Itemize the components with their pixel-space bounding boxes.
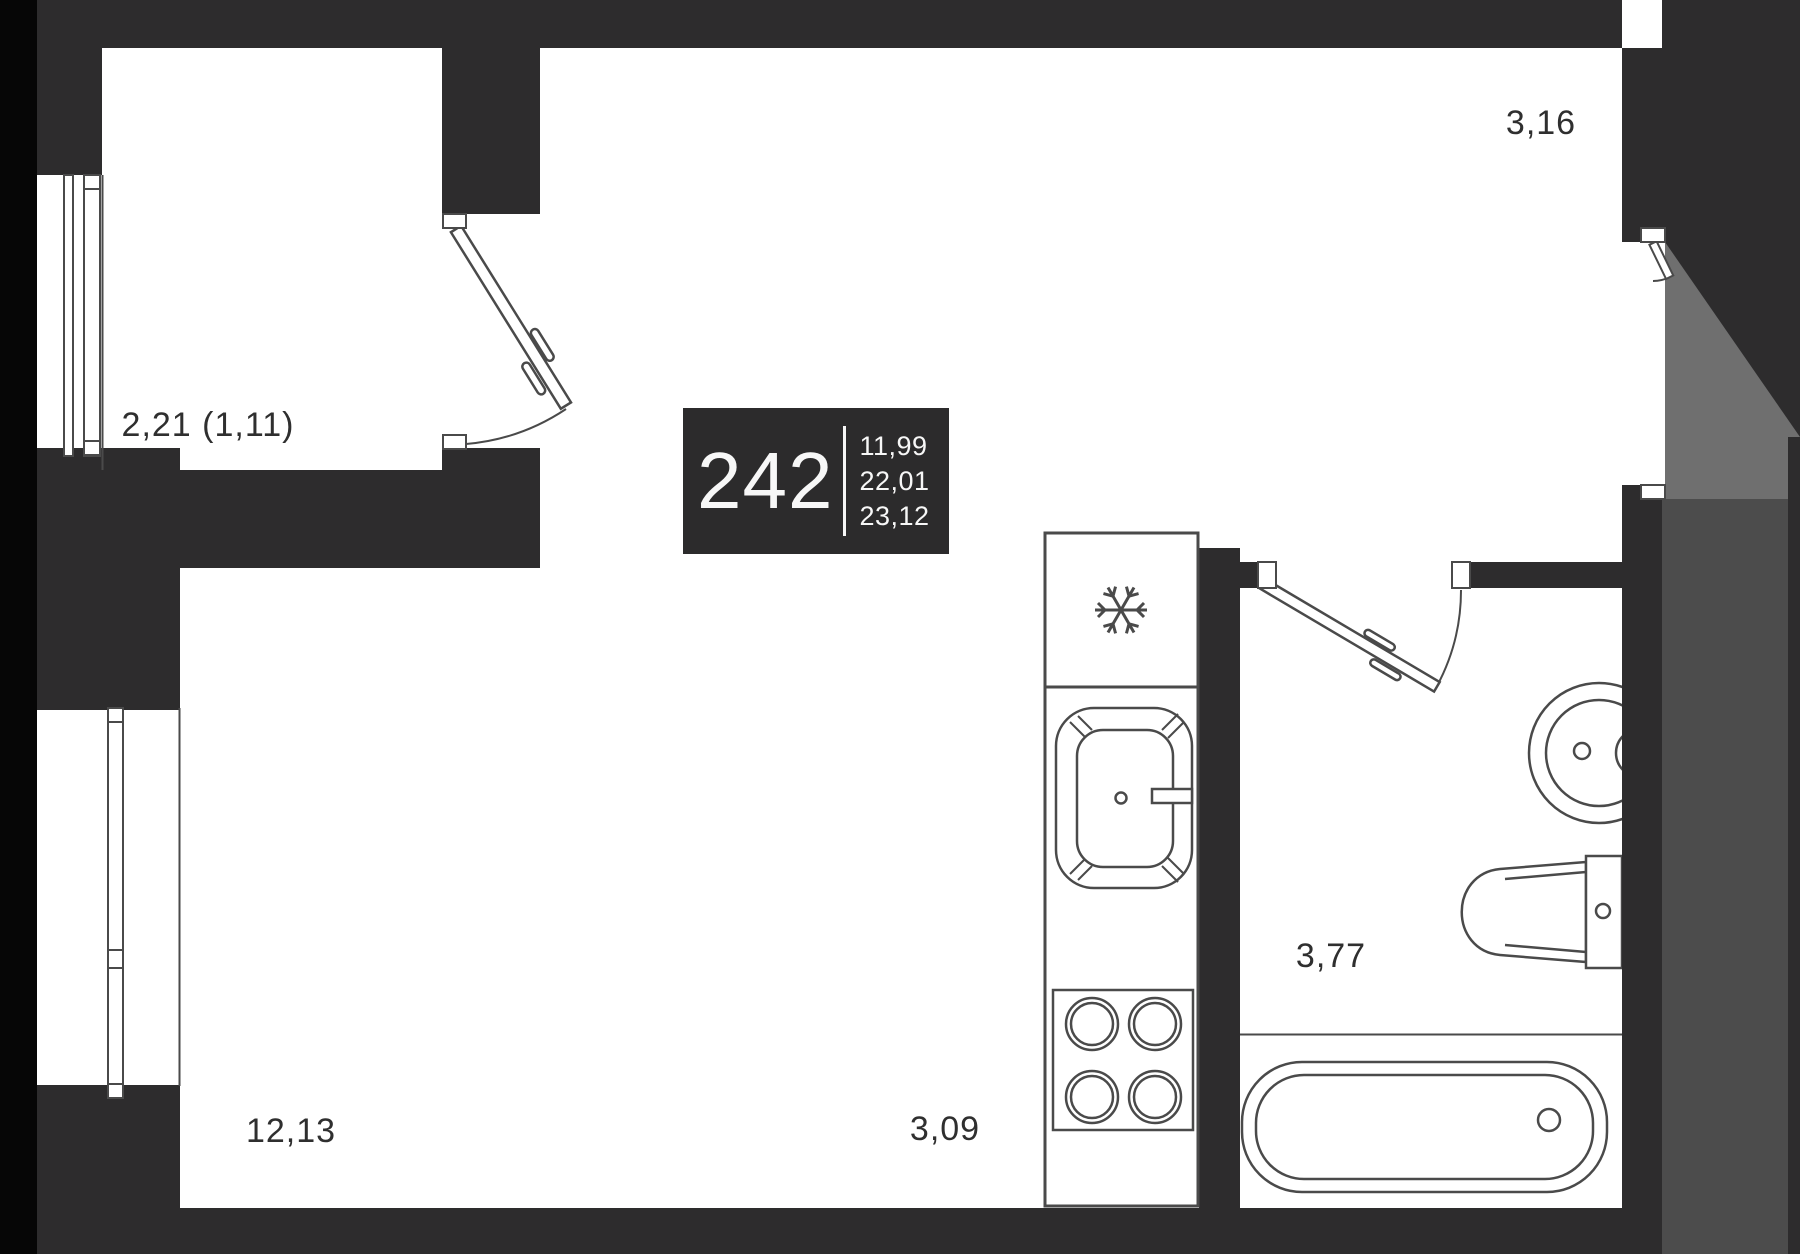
bathtub	[1242, 1062, 1607, 1192]
plan-linework	[0, 0, 1800, 1254]
unit-area-row: 22,01	[859, 464, 929, 499]
unit-area-row: 11,99	[859, 429, 929, 464]
bathroom-area-label: 3,77	[1278, 939, 1384, 973]
door-jamb	[1452, 562, 1470, 588]
unit-info-badge: 242 11,99 22,01 23,12	[683, 408, 949, 554]
badge-divider	[843, 426, 846, 536]
top-room-area-label: 3,16	[1486, 106, 1596, 140]
living-room-area-label: 12,13	[228, 1114, 354, 1148]
floor-plan: 2,21 (1,11) 3,16 12,13 3,09 3,77 242 11,…	[0, 0, 1800, 1254]
balcony-door	[442, 214, 580, 449]
unit-number: 242	[683, 441, 833, 521]
unit-area-row: 23,12	[859, 499, 929, 534]
door-jamb	[1258, 562, 1276, 588]
balcony-door-swing-arc	[466, 409, 566, 444]
door-jamb	[443, 214, 466, 228]
door-jamb	[443, 435, 466, 449]
toilet	[1462, 856, 1622, 968]
door-jamb	[1641, 228, 1665, 242]
door-jamb	[1641, 485, 1665, 499]
living-room-window	[108, 708, 123, 1098]
entry-door	[1641, 228, 1673, 499]
kitchen-sink	[1056, 708, 1192, 888]
bathroom-sink	[1529, 683, 1669, 823]
balcony-area-label: 2,21 (1,11)	[118, 408, 298, 442]
unit-area-list: 11,99 22,01 23,12	[859, 429, 929, 534]
balcony-window	[64, 175, 100, 456]
bathroom-door-swing-arc	[1437, 590, 1461, 686]
kitchen-area-label: 3,09	[893, 1112, 997, 1146]
freezer-box	[1045, 533, 1198, 687]
toilet-tank	[1586, 856, 1622, 968]
bathroom-door	[1255, 562, 1470, 700]
stove	[1053, 990, 1193, 1130]
sink-tap	[1152, 789, 1192, 803]
